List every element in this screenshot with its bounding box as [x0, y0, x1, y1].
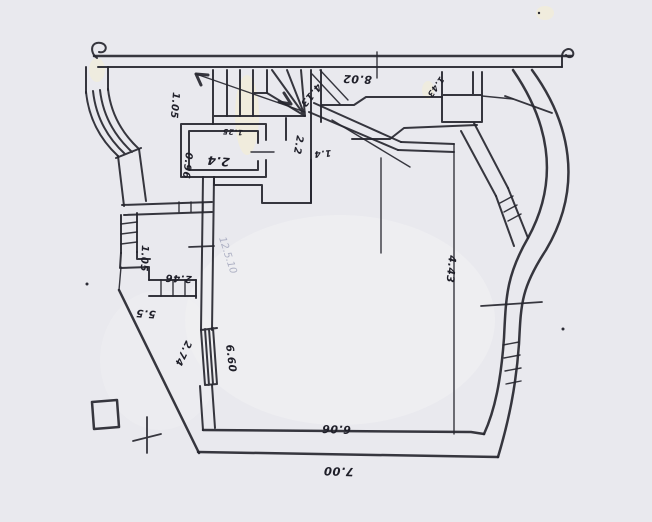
floor-plan-sketch: 1.05 0.96 2.4 1.25 2.2 1.4 8.02 4.13 1.4…: [0, 0, 652, 522]
flight-diagonal-wall: [309, 103, 401, 150]
right-curve-outer: [498, 70, 568, 457]
dim-room-bottom-label: 6.06: [322, 422, 352, 436]
long-thin-diagonal: [332, 120, 410, 167]
dim-left-hall-length-label: 2.46: [165, 272, 192, 284]
dim-top-corridor-label: 8.02: [343, 72, 373, 86]
dim-wc-door-label: 1.25: [222, 127, 243, 137]
speck: [538, 12, 540, 14]
left-wall-upper-diagonal: [118, 149, 146, 206]
dim-overall-bottom-label: 7.00: [323, 464, 354, 479]
left-wall-connector: [119, 267, 121, 290]
right-horizontal-wall: [398, 142, 454, 152]
dim-upper-hall-label: 1.05: [168, 92, 181, 120]
left-curved-window-band: [86, 89, 141, 158]
scanned-paper-sheet: 1.05 0.96 2.4 1.25 2.2 1.4 8.02 4.13 1.4…: [0, 0, 652, 522]
yellow-stain: [89, 58, 105, 82]
speck: [86, 283, 89, 286]
dim-left-hall-width-label: 1.05: [138, 245, 150, 272]
dim-room-right-label: 4.43: [444, 254, 458, 284]
speck: [562, 328, 565, 331]
top-wall-right-curl: [562, 49, 573, 67]
dim-wc-room-label: 2.4: [206, 153, 230, 169]
upper-interior-wall-b: [352, 125, 477, 139]
paper-light-patch: [185, 215, 495, 425]
left-wall-dimension-tick: [189, 246, 214, 247]
dim-stair-hall-label: 2.2: [291, 134, 305, 155]
dim-stair-hall-small-label: 1.4: [313, 147, 331, 158]
shaft: [442, 72, 482, 122]
stair-winder-fan: [267, 70, 305, 116]
left-window-band-2-hatch: [121, 222, 137, 244]
dim-left-wall-label: 5.5: [135, 307, 156, 320]
stair-arrowhead-up: [196, 74, 208, 85]
bottom-wall-outer: [198, 452, 498, 457]
lobby-horizontal-wall: [122, 202, 212, 215]
inner-diagonal-wall: [461, 123, 508, 196]
